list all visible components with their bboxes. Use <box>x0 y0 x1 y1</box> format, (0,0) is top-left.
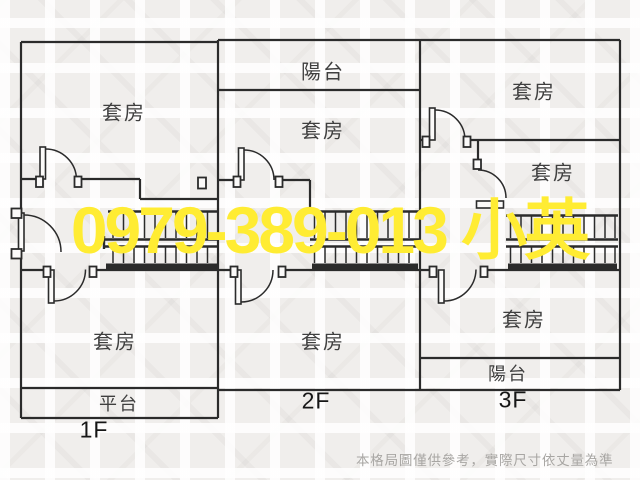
door-arc <box>244 150 274 180</box>
door-leaf <box>430 108 436 140</box>
door-post <box>36 177 43 188</box>
door-arc <box>54 270 86 302</box>
door-arc <box>444 270 476 302</box>
door-leaf <box>239 148 245 180</box>
floor-label-3f: 3F <box>499 387 528 414</box>
door-post <box>474 160 482 170</box>
room-label-balcony-2f: 陽台 <box>301 56 345 85</box>
floor-label-1f: 1F <box>80 417 109 444</box>
room-label-suite-1f-upper: 套房 <box>102 97 146 126</box>
door-bottom <box>231 267 286 305</box>
door-post <box>423 137 430 148</box>
door-top <box>423 108 471 147</box>
door-post <box>90 267 97 278</box>
door-leaf <box>439 270 445 303</box>
room-label-suite-3f-upper: 套房 <box>512 76 556 105</box>
door-post <box>234 177 241 188</box>
door-post <box>12 249 22 259</box>
room-label-suite-3f-middle: 套房 <box>531 157 575 186</box>
door-arc <box>46 149 77 180</box>
room-label-balcony-3f: 陽台 <box>488 360 528 386</box>
door-post <box>44 267 51 278</box>
door-post <box>464 137 471 148</box>
floorplan-canvas: 套房 套房 平台 1F 陽台 套房 套房 2F 套房 套房 套房 陽台 3F 0… <box>0 0 640 480</box>
room-label-suite-2f-upper: 套房 <box>301 115 345 144</box>
door-entry-left <box>12 209 62 259</box>
door-top <box>36 147 82 187</box>
door-post <box>75 177 82 188</box>
door-post <box>276 177 283 188</box>
room-label-suite-2f-lower: 套房 <box>301 326 345 355</box>
door-post <box>231 267 238 278</box>
door-top <box>234 148 283 187</box>
wall-post <box>198 178 206 189</box>
door-post <box>12 209 22 219</box>
door-post <box>481 267 488 278</box>
door-bottom <box>44 267 97 304</box>
door-arc <box>241 270 273 302</box>
door-post <box>279 267 286 278</box>
room-label-suite-3f-lower: 套房 <box>502 304 546 333</box>
room-label-suite-1f-lower: 套房 <box>93 326 137 355</box>
phone-watermark: 0979-389-013 小英 <box>71 197 587 263</box>
door-leaf <box>40 147 46 179</box>
room-label-platform-1f: 平台 <box>99 390 139 416</box>
door-arc <box>435 110 465 140</box>
door-bottom <box>430 267 488 304</box>
floor-label-2f: 2F <box>302 388 331 415</box>
door-post <box>430 267 437 278</box>
door-arc <box>24 215 61 252</box>
disclaimer-text: 本格局圖僅供參考，實際尺寸依丈量為準 <box>356 449 613 469</box>
